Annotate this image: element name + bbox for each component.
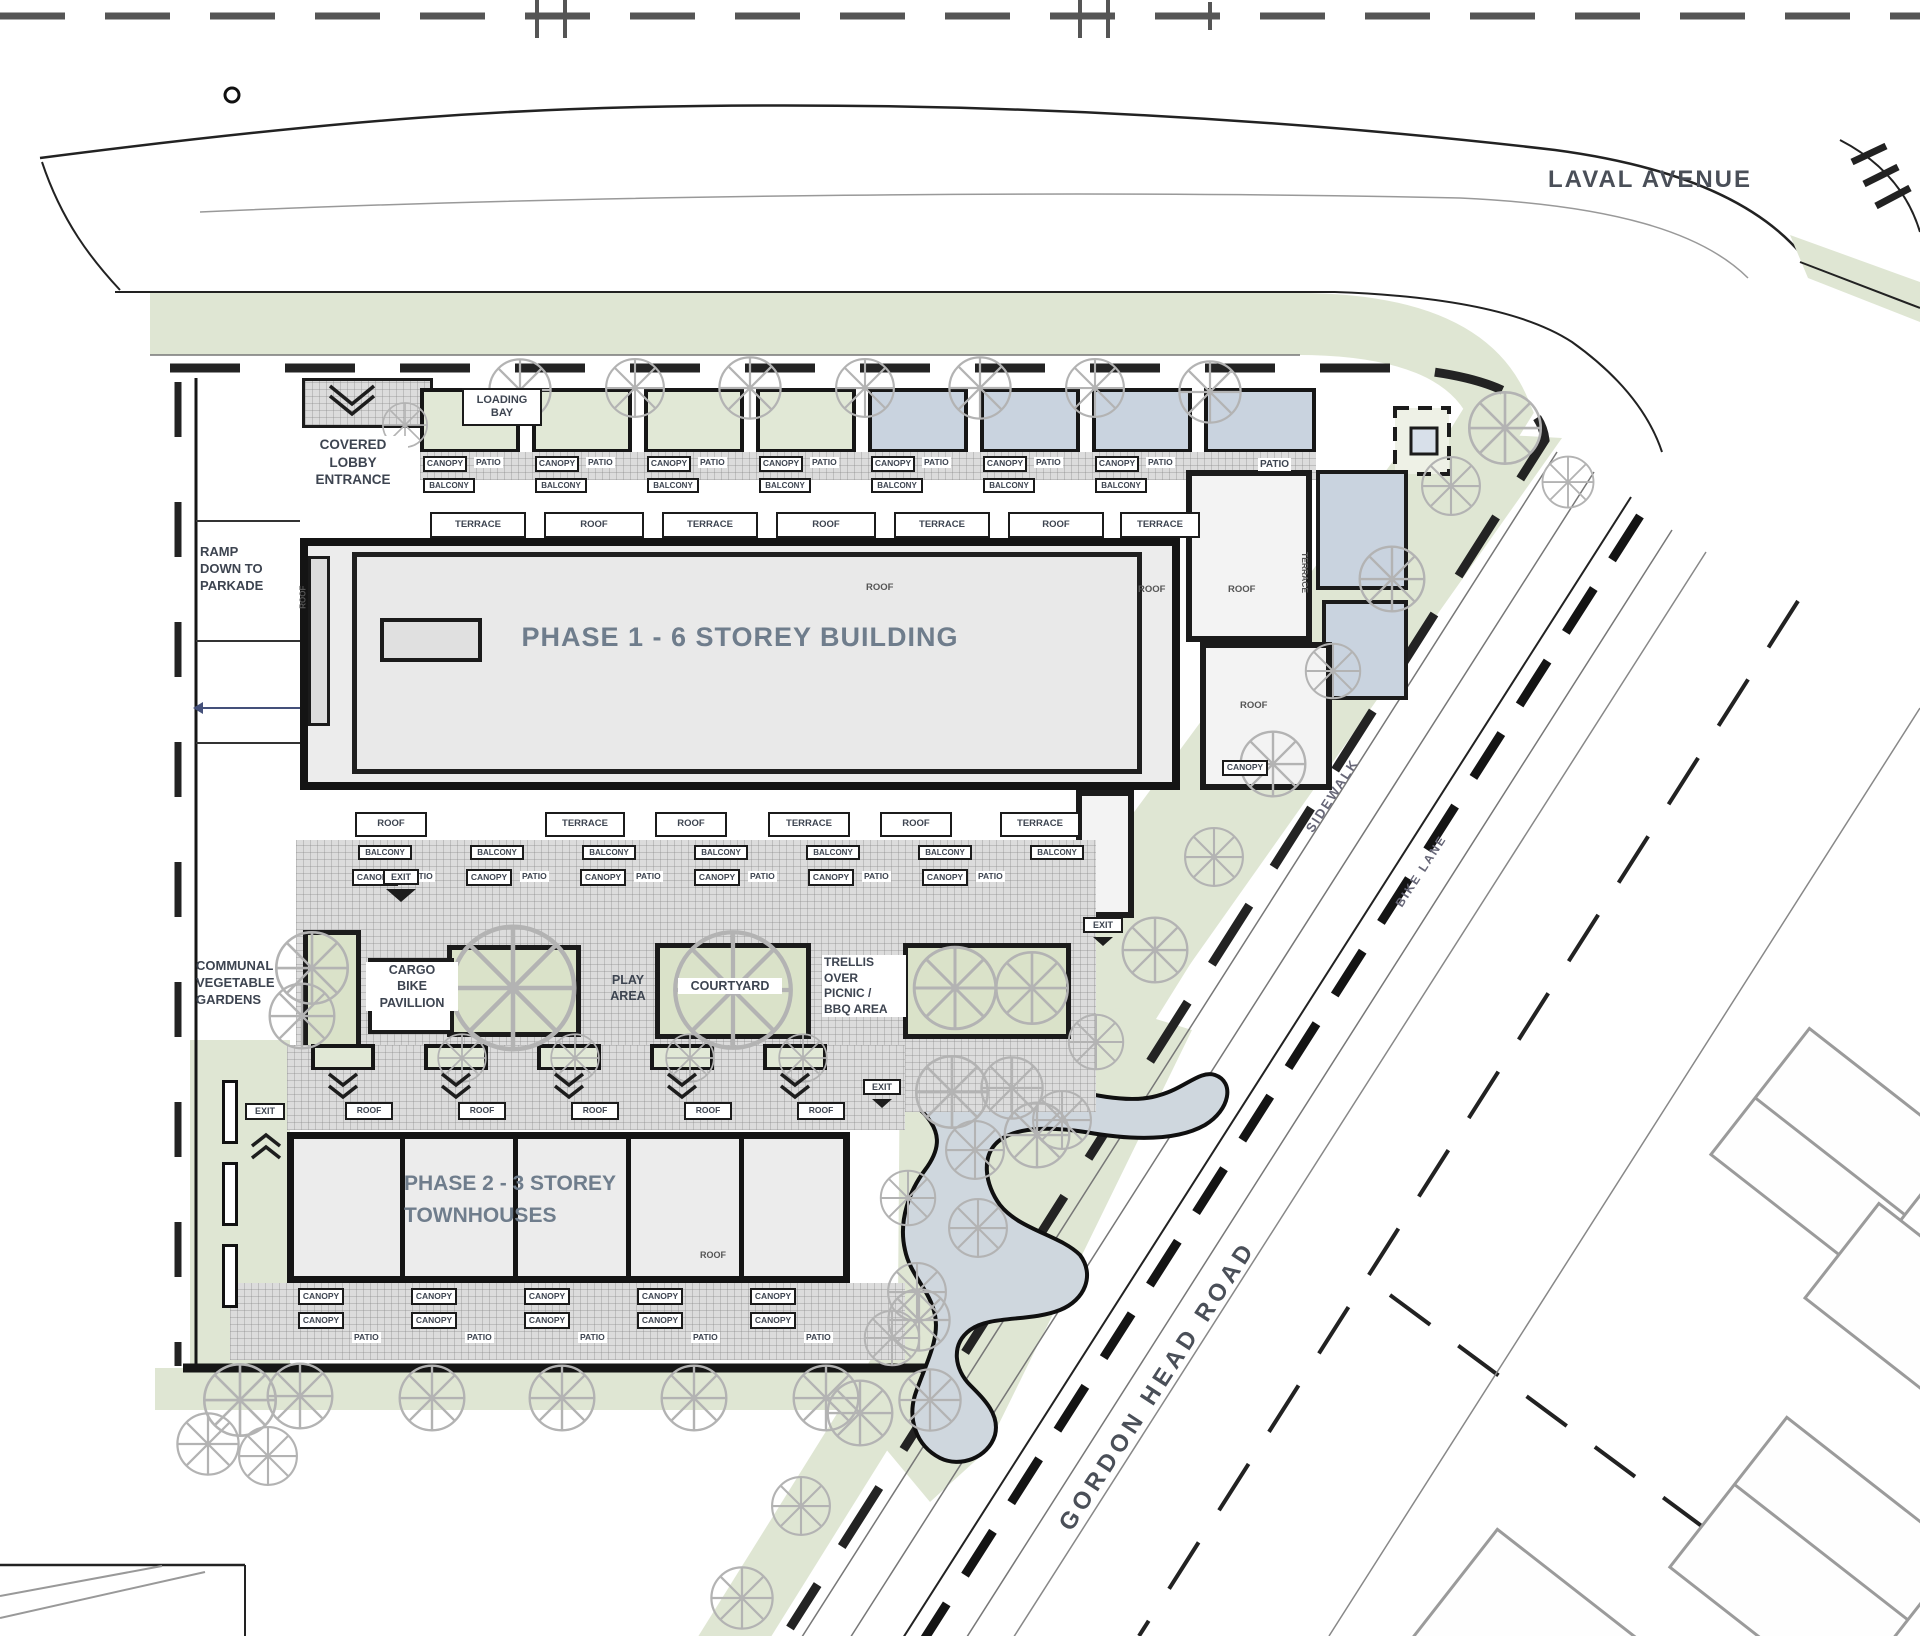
canopy-label: CANOPY: [983, 456, 1027, 472]
canopy-label: CANOPY: [750, 1288, 796, 1305]
canopy-label: CANOPY: [637, 1288, 683, 1305]
townhouse-party-wall: [626, 1136, 631, 1279]
garden-plot: [222, 1244, 238, 1308]
patio-label: PATIO: [586, 457, 615, 468]
canopy-label: CANOPY: [298, 1312, 344, 1329]
garden-plot: [222, 1162, 238, 1226]
phase2-title-line2: TOWNHOUSES: [404, 1204, 556, 1228]
ramp-direction-line: [200, 707, 300, 709]
townhouse-entry-garden: [650, 1044, 714, 1070]
gordon-head-road-label: GORDON HEAD ROAD: [1032, 1202, 1284, 1569]
balcony-label: BALCONY: [918, 845, 972, 860]
exit-label: EXIT: [863, 1079, 901, 1095]
canopy-label: CANOPY: [922, 869, 968, 886]
unit-patio: [1092, 388, 1192, 452]
roof-label: ROOF: [298, 586, 308, 609]
canopy-label: CANOPY: [637, 1312, 683, 1329]
terrace-label: TERRACE: [545, 812, 625, 837]
covered-lobby-entrance-label: COVERED LOBBY ENTRANCE: [298, 436, 408, 489]
balcony-label: BALCONY: [647, 478, 699, 493]
roof-label: ROOF: [544, 512, 644, 538]
townhouse-party-wall: [739, 1136, 744, 1279]
patio-label: PATIO: [520, 871, 549, 882]
roof-label: ROOF: [345, 1102, 393, 1120]
balcony-label: BALCONY: [1095, 478, 1147, 493]
townhouse-entry-garden: [424, 1044, 488, 1070]
planter: [903, 943, 1071, 1039]
terrace-label: TERRACE: [662, 512, 758, 538]
exit-arrow: [872, 1099, 892, 1108]
balcony-label: BALCONY: [983, 478, 1035, 493]
canopy-label: CANOPY: [524, 1288, 570, 1305]
canopy-label: CANOPY: [750, 1312, 796, 1329]
planter: [447, 945, 581, 1037]
balcony-label: BALCONY: [358, 845, 412, 860]
laval-avenue-label: LAVAL AVENUE: [1548, 166, 1752, 194]
terrace-label: TERRACE: [1000, 812, 1080, 837]
canopy-label: CANOPY: [524, 1312, 570, 1329]
unit-patio: [1204, 388, 1316, 452]
roof-label: ROOF: [1240, 700, 1267, 712]
patio-label: PATIO: [862, 871, 891, 882]
exit-label: EXIT: [245, 1103, 285, 1120]
roof-label: ROOF: [866, 582, 893, 594]
cargo-bike-pavillion-label: CARGO BIKE PAVILLION: [366, 962, 458, 1011]
site-plan-background-drawing: [0, 0, 1920, 1636]
site-plan: LAVAL AVENUE GORDON HEAD ROAD SIDEWALK B…: [0, 0, 1920, 1636]
loading-bay-label: LOADING BAY: [462, 388, 542, 426]
roof-label: ROOF: [797, 1102, 845, 1120]
canopy-label: CANOPY: [647, 456, 691, 472]
trees-overlay: [0, 0, 1920, 1636]
roof-label: ROOF: [655, 812, 727, 837]
balcony-label: BALCONY: [582, 845, 636, 860]
roof-label: ROOF: [684, 1102, 732, 1120]
townhouse-entry-garden: [763, 1044, 827, 1070]
balcony-label: BALCONY: [806, 845, 860, 860]
exit-arrow: [386, 889, 416, 902]
phase2-building: [287, 1132, 850, 1283]
canopy-label: CANOPY: [535, 456, 579, 472]
canopy-label: CANOPY: [411, 1312, 457, 1329]
roof-label: ROOF: [700, 1250, 726, 1262]
balcony-label: BALCONY: [1030, 845, 1084, 860]
balcony-label: BALCONY: [759, 478, 811, 493]
lobby-plaza-paving: [302, 378, 433, 428]
roof-label: ROOF: [355, 812, 427, 837]
parkade-ramp-line: [196, 520, 300, 522]
patio-label: PATIO: [976, 871, 1005, 882]
bike-lane-label: BIKE LANE: [1385, 821, 1457, 921]
patio-label: PATIO: [698, 457, 727, 468]
patio-label: PATIO: [1034, 457, 1063, 468]
east-units: [1316, 470, 1408, 590]
exit-label: EXIT: [1083, 917, 1123, 933]
phase1-west-stub: [308, 556, 330, 726]
canopy-label: CANOPY: [871, 456, 915, 472]
roof-label: ROOF: [1008, 512, 1104, 538]
unit-patio: [644, 388, 744, 452]
roof-label: ROOF: [458, 1102, 506, 1120]
canopy-label: CANOPY: [423, 456, 467, 472]
townhouse-entry-garden: [537, 1044, 601, 1070]
patio-label: PATIO: [691, 1332, 720, 1343]
patio-label: PATIO: [634, 871, 663, 882]
trellis-picnic-bbq-label: TRELLIS OVER PICNIC / BBQ AREA: [822, 955, 906, 1017]
exit-label: EXIT: [383, 869, 419, 885]
roof-label: ROOF: [1228, 584, 1255, 596]
canopy-label: CANOPY: [1222, 760, 1268, 776]
roof-label: ROOF: [1138, 584, 1165, 596]
roof-label: ROOF: [776, 512, 876, 538]
communal-vegetable-gardens-label: COMMUNAL VEGETABLE GARDENS: [196, 958, 300, 1009]
unit-patio: [756, 388, 856, 452]
ramp-down-to-parkade-label: RAMP DOWN TO PARKADE: [200, 544, 296, 595]
canopy-label: CANOPY: [694, 869, 740, 886]
patio-label: PATIO: [465, 1332, 494, 1343]
parkade-ramp-line: [196, 742, 300, 744]
parkade-ramp-line: [196, 640, 300, 642]
terrace-label: TERRACE: [1120, 512, 1200, 538]
canopy-label: CANOPY: [580, 869, 626, 886]
terrace-label: TERRACE: [894, 512, 990, 538]
patio-label: PATIO: [352, 1332, 381, 1343]
canopy-label: CANOPY: [298, 1288, 344, 1305]
unit-patio: [532, 388, 632, 452]
exit-arrow: [1093, 937, 1113, 946]
play-area-label: PLAY AREA: [598, 972, 658, 1005]
ramp-direction-arrowhead: [193, 702, 203, 714]
canopy-label: CANOPY: [411, 1288, 457, 1305]
patio-label: PATIO: [1146, 457, 1175, 468]
terrace-label: TERRACE: [1299, 552, 1310, 593]
balcony-label: BALCONY: [535, 478, 587, 493]
patio-label: PATIO: [578, 1332, 607, 1343]
patio-label: PATIO: [1258, 458, 1291, 471]
roof-label: ROOF: [880, 812, 952, 837]
balcony-label: BALCONY: [423, 478, 475, 493]
balcony-label: BALCONY: [470, 845, 524, 860]
garden-plot: [222, 1080, 238, 1144]
phase1-title: PHASE 1 - 6 STOREY BUILDING: [460, 622, 1020, 653]
east-units: [1322, 600, 1408, 700]
phase1-east-wing: [1186, 470, 1312, 642]
canopy-label: CANOPY: [808, 869, 854, 886]
patio-label: PATIO: [922, 457, 951, 468]
terrace-label: TERRACE: [430, 512, 526, 538]
patio-label: PATIO: [810, 457, 839, 468]
balcony-label: BALCONY: [694, 845, 748, 860]
terrace-label: TERRACE: [768, 812, 850, 837]
canopy-label: CANOPY: [759, 456, 803, 472]
phase2-title-line1: PHASE 2 - 3 STOREY: [404, 1172, 616, 1196]
townhouse-entry-garden: [311, 1044, 375, 1070]
patio-label: PATIO: [474, 457, 503, 468]
unit-patio: [868, 388, 968, 452]
courtyard-label: COURTYARD: [678, 978, 782, 994]
unit-patio: [980, 388, 1080, 452]
phase1-roof-inner: [352, 552, 1142, 774]
patio-label: PATIO: [804, 1332, 833, 1343]
roof-label: ROOF: [571, 1102, 619, 1120]
balcony-label: BALCONY: [871, 478, 923, 493]
patio-label: PATIO: [748, 871, 777, 882]
canopy-label: CANOPY: [1095, 456, 1139, 472]
canopy-label: CANOPY: [466, 869, 512, 886]
